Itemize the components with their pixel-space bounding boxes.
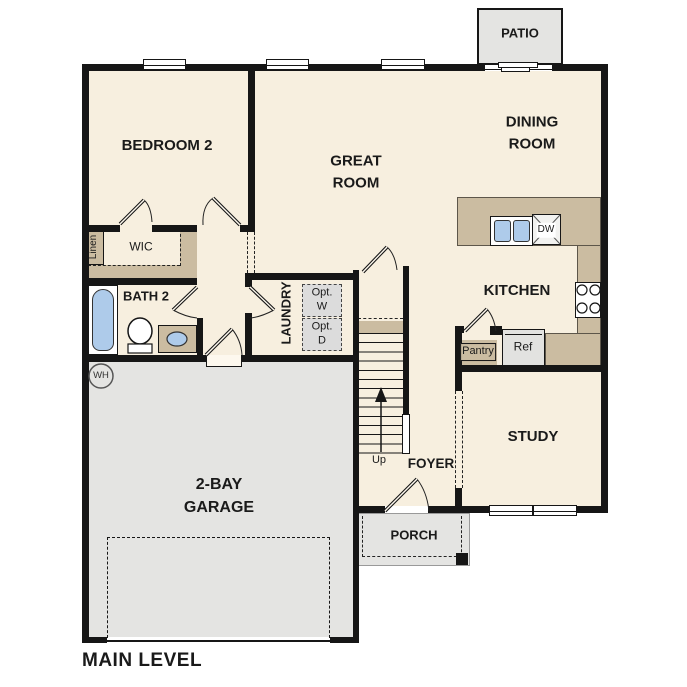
patio-sliding-door-panel xyxy=(501,67,530,72)
wall xyxy=(82,64,89,643)
plan-title: MAIN LEVEL xyxy=(82,650,202,672)
bath-vanity xyxy=(158,325,197,353)
label-pantry: Pantry xyxy=(460,343,496,361)
room-label-dining-room: DINING ROOM xyxy=(487,111,577,155)
stair-railing xyxy=(402,414,410,454)
room-label-laundry: LAUNDRY xyxy=(278,281,297,344)
window xyxy=(266,59,309,70)
stair-treads xyxy=(358,333,403,454)
label-ref: Ref xyxy=(514,338,533,355)
wic-dashed-line-right xyxy=(180,229,181,266)
bathtub xyxy=(92,289,114,351)
porch-post xyxy=(456,553,468,565)
wall xyxy=(82,355,206,362)
label-dishwasher: DW xyxy=(537,223,556,238)
garage-door-line xyxy=(107,640,330,642)
wall xyxy=(245,313,252,355)
refrigerator-handle xyxy=(505,334,542,335)
stove xyxy=(575,282,601,318)
window xyxy=(143,59,186,70)
wall xyxy=(197,318,203,355)
wall xyxy=(353,270,359,643)
room-label-bath2: BATH 2 xyxy=(123,288,169,307)
wall xyxy=(330,637,359,643)
label-opt-washer: Opt. W xyxy=(307,286,337,315)
wall xyxy=(455,365,601,372)
wall xyxy=(242,355,359,362)
stair-landing xyxy=(358,321,403,333)
wall xyxy=(82,225,120,232)
garage-door-outline xyxy=(107,537,330,638)
room-label-kitchen: KITCHEN xyxy=(484,280,551,302)
label-opt-dryer: Opt. D xyxy=(307,320,337,349)
wall xyxy=(240,225,255,232)
room-label-bedroom2: BEDROOM 2 xyxy=(122,135,213,157)
wall xyxy=(455,488,462,506)
wall xyxy=(82,637,107,643)
room-label-linen: Linen xyxy=(87,235,102,259)
cased-opening-study xyxy=(455,391,463,488)
room-label-porch: PORCH xyxy=(391,527,438,546)
wall xyxy=(428,506,455,513)
wall xyxy=(245,273,252,287)
kitchen-counter-bottom xyxy=(545,333,601,366)
garage-door-threshold xyxy=(206,355,242,367)
room-label-patio: PATIO xyxy=(501,25,539,44)
label-up: Up xyxy=(372,453,386,469)
room-label-study: STUDY xyxy=(508,426,559,448)
room-label-foyer: FOYER xyxy=(408,454,455,474)
room-label-garage: 2-BAY GARAGE xyxy=(169,473,269,519)
wall xyxy=(152,225,197,232)
room-label-wic: WIC xyxy=(129,238,152,255)
wall xyxy=(403,266,409,415)
room-label-great-room: GREAT ROOM xyxy=(316,150,396,194)
wall xyxy=(552,64,608,71)
wall xyxy=(248,64,255,225)
stair-landing-dash xyxy=(358,318,403,319)
sink-basin-right xyxy=(513,220,530,242)
wall xyxy=(455,326,464,333)
window xyxy=(381,59,425,70)
wall xyxy=(601,64,608,513)
wall xyxy=(358,506,385,513)
wall xyxy=(82,278,197,285)
floor-plan: BEDROOM 2 GREAT ROOM DINING ROOM KITCHEN… xyxy=(0,0,687,687)
wall xyxy=(245,273,359,280)
label-water-heater: WH xyxy=(93,369,109,383)
cased-opening-hall xyxy=(247,232,255,273)
window xyxy=(533,505,577,516)
window xyxy=(489,505,533,516)
wall xyxy=(490,326,502,335)
sink-basin-left xyxy=(494,220,511,242)
wic-dashed-line xyxy=(88,265,180,266)
